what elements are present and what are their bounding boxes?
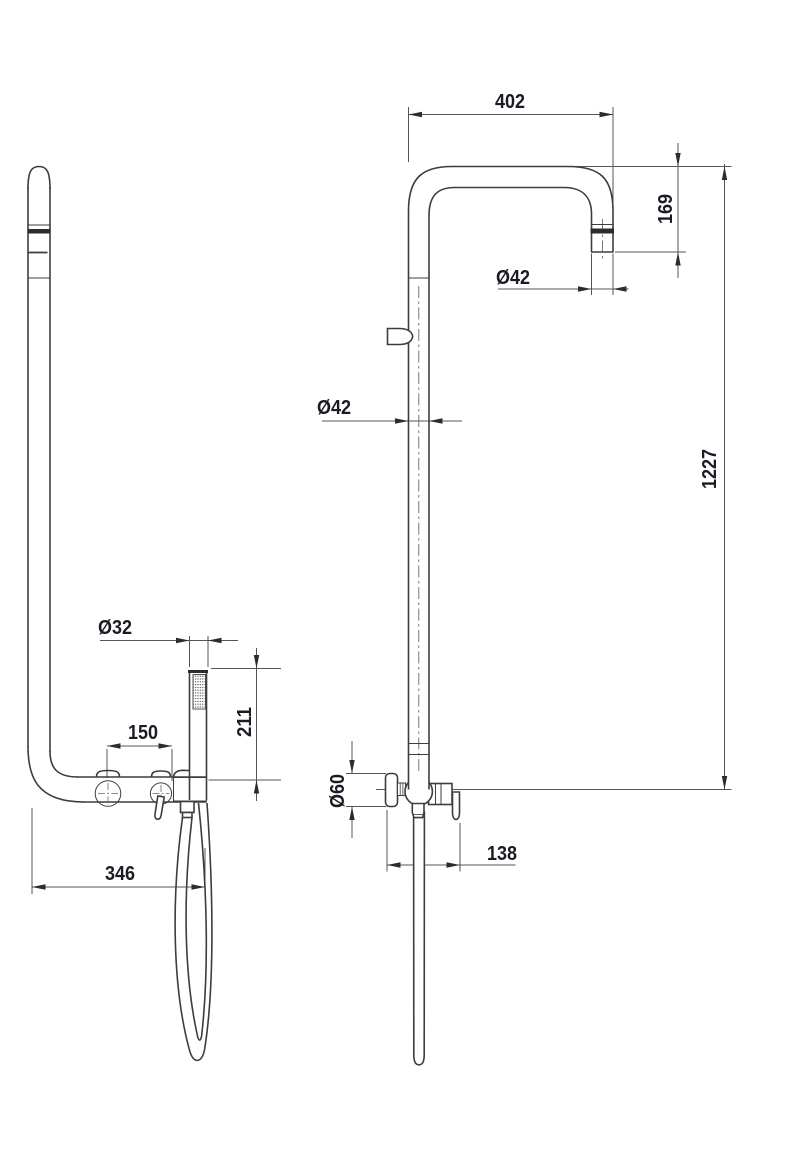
arrowhead [409,112,423,117]
dim-label-arm-reach: 402 [495,91,525,113]
arrowhead [254,655,259,669]
arrowhead [675,153,680,167]
arrowhead [208,638,222,643]
arrowhead [395,418,409,423]
arrowhead [349,807,354,821]
diverter-knob-front [388,329,413,345]
arrowhead [159,743,173,748]
head-band-side [28,229,51,234]
arrowhead [722,776,727,790]
dim-label-escutcheon-diameter: Ø60 [327,774,349,808]
diverter-bonnet [152,771,171,777]
pipe-bend-outer [28,746,84,802]
arrowhead [429,418,443,423]
mixer-lever-side [154,796,164,820]
arrowhead [447,862,461,867]
riser-pipe-side [28,167,85,803]
side-view [28,167,212,1061]
arrowhead [32,884,46,889]
mixer-front [386,774,460,1065]
wall-escutcheon [386,774,398,807]
dim-label-total-height: 1227 [699,449,721,489]
connector-ribs [398,783,406,796]
hose-loop-side [175,803,212,1060]
arrowhead [578,286,592,291]
dim-label-head-drop: 169 [655,194,677,224]
arrowhead [349,760,354,774]
shower-arm-front [409,167,614,226]
arrowhead [600,112,614,117]
arrowhead [176,638,190,643]
dim-label-handshower-height: 211 [234,707,256,737]
dim-label-head-diameter: Ø42 [496,267,530,289]
arrowhead [254,780,259,794]
arrowhead [675,252,680,266]
dim-label-mixer-projection: 138 [487,843,517,865]
spray-face [193,675,206,710]
dim-label-riser-diameter: Ø42 [317,397,351,419]
dimension-lines [32,107,732,894]
head-band-front [591,229,615,234]
hose-nut-side [181,802,195,813]
hose-nut-lower [183,813,193,818]
technical-drawing: 402 Ø42 Ø42 Ø32 150 346 138 169 1227 Ø60… [0,0,800,1171]
dim-label-handle-spacing: 150 [128,722,158,744]
dim-label-depth: 346 [105,863,135,885]
front-view [386,167,615,1065]
dim-label-handshower-diameter: Ø32 [98,617,132,639]
riser-pipe-front [388,216,430,790]
arrowhead [387,862,401,867]
hose-nut-front [412,804,424,818]
arrowhead [613,286,627,291]
arrowhead [107,743,121,748]
arrowhead [192,884,206,889]
drawing-canvas: 402 Ø42 Ø42 Ø32 150 346 138 169 1227 Ø60… [0,0,800,1171]
valve-bonnet [97,771,120,778]
dimension-labels: 402 Ø42 Ø42 Ø32 150 346 138 169 1227 Ø60… [98,91,721,885]
hose-front [414,812,425,1065]
mixer-lever-front [453,792,460,820]
arrowhead [722,167,727,181]
handshower-side [174,672,209,818]
pipe-bend-inner [50,751,78,777]
